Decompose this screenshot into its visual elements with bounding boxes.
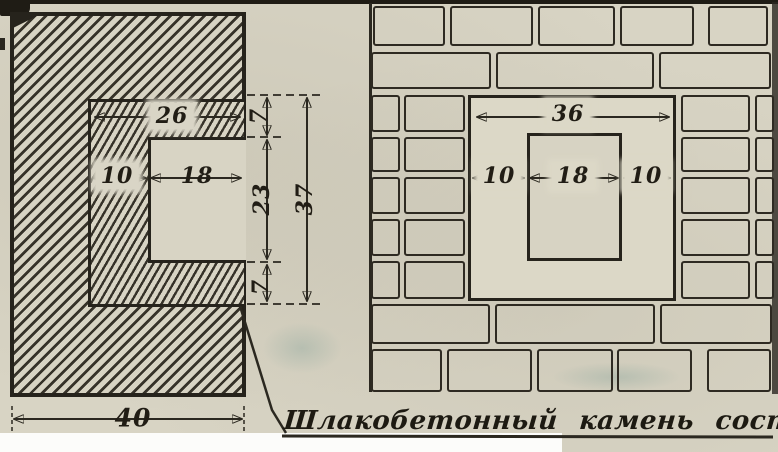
- dim-label-band-top: 7: [246, 108, 272, 124]
- brick: [373, 6, 445, 46]
- brick: [371, 219, 400, 256]
- brick: [755, 261, 774, 299]
- photo-edge-mark: [0, 38, 5, 50]
- scanned-figure: 26 10 18 7 23 7 37 40 36 10 18 10 Шлакоб…: [0, 0, 778, 452]
- brick: [617, 349, 692, 392]
- brick: [707, 349, 771, 392]
- dim-label-right-offset: 10: [625, 163, 668, 189]
- print-bleed: [262, 322, 342, 374]
- brick: [371, 52, 491, 89]
- brick: [681, 137, 750, 172]
- brick: [371, 137, 400, 172]
- brick: [371, 261, 400, 299]
- brick: [537, 349, 613, 392]
- dim-label-channel-width: 18: [181, 163, 214, 189]
- brick: [496, 52, 654, 89]
- brick: [681, 95, 750, 132]
- brick: [447, 349, 532, 392]
- dim-label-inner-span: 36: [547, 101, 590, 127]
- brick: [371, 177, 400, 214]
- brick: [659, 52, 771, 89]
- brick: [371, 95, 400, 132]
- brick: [371, 349, 442, 392]
- dim-label-lining-top-width: 26: [151, 103, 194, 129]
- dim-label-hole-width: 18: [552, 163, 595, 189]
- brick: [620, 6, 694, 46]
- flue-channel-opening: [148, 137, 246, 263]
- figure-caption: Шлакобетонный камень состава 1:7.: [283, 406, 778, 436]
- dim-label-left-offset: 10: [478, 163, 521, 189]
- dim-label-band-bottom: 7: [248, 279, 274, 295]
- photo-top-edge: [0, 0, 778, 4]
- brick: [755, 137, 774, 172]
- masonry-flue-hole: [527, 133, 622, 261]
- dim-label-lining-thickness: 10: [96, 163, 139, 189]
- brick: [538, 6, 615, 46]
- brick: [755, 177, 774, 214]
- brick: [404, 261, 465, 299]
- dim-label-block-width: 40: [115, 404, 152, 433]
- brick: [681, 177, 750, 214]
- brick: [404, 177, 465, 214]
- brick: [404, 219, 465, 256]
- brick: [371, 304, 490, 344]
- brick: [708, 6, 768, 46]
- brick: [404, 95, 465, 132]
- dim-label-total-inner-height: 37: [292, 183, 318, 216]
- brick: [681, 219, 750, 256]
- brick: [660, 304, 772, 344]
- brick: [681, 261, 750, 299]
- brick: [755, 219, 774, 256]
- brick: [755, 95, 774, 132]
- brick: [404, 137, 465, 172]
- brick: [495, 304, 655, 344]
- brick: [450, 6, 533, 46]
- dim-label-channel-height: 23: [249, 183, 275, 216]
